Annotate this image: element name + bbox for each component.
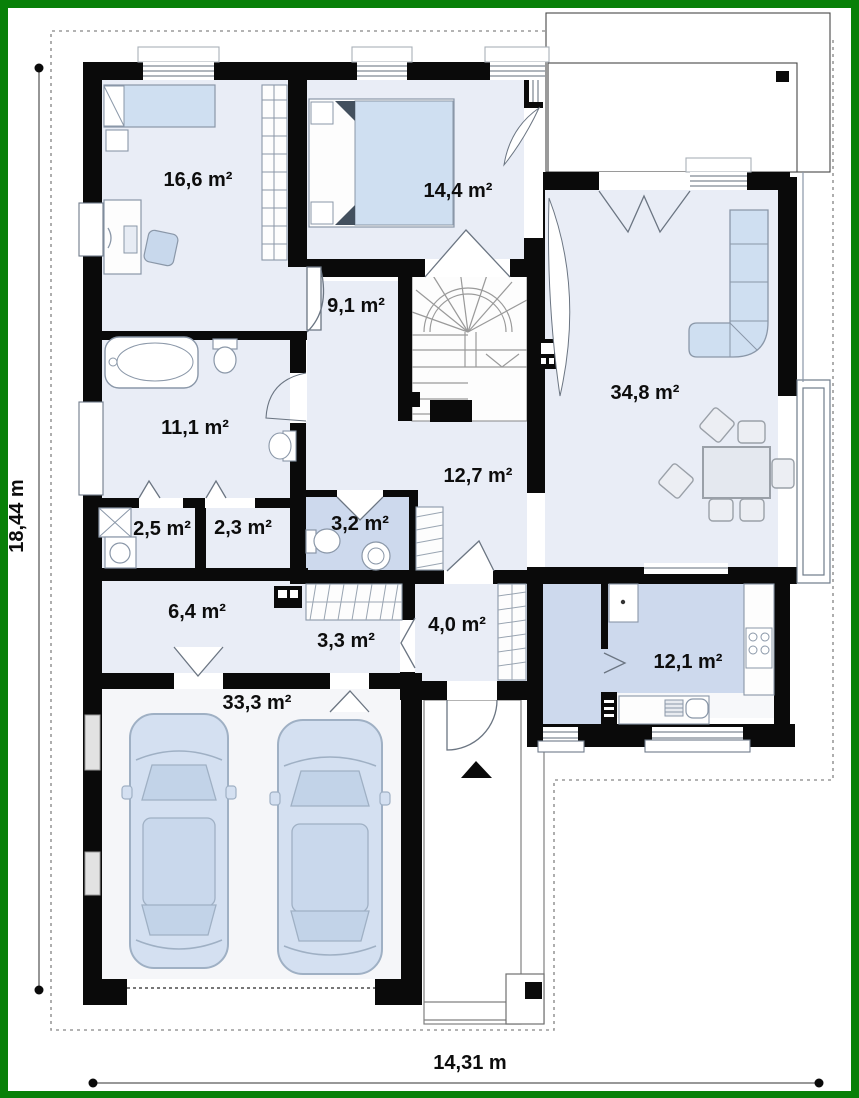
svg-text:4,0 m²: 4,0 m²	[428, 614, 486, 636]
svg-text:12,7 m²: 12,7 m²	[444, 465, 513, 487]
svg-text:3,2 m²: 3,2 m²	[331, 513, 389, 535]
svg-text:14,4 m²: 14,4 m²	[424, 180, 493, 202]
svg-text:2,3 m²: 2,3 m²	[214, 517, 272, 539]
svg-text:14,31 m: 14,31 m	[433, 1052, 506, 1074]
svg-text:12,1 m²: 12,1 m²	[654, 651, 723, 673]
svg-text:11,1 m²: 11,1 m²	[161, 417, 229, 439]
svg-text:2,5 m²: 2,5 m²	[133, 518, 191, 540]
svg-text:6,4 m²: 6,4 m²	[168, 601, 226, 623]
svg-text:9,1 m²: 9,1 m²	[327, 295, 385, 317]
svg-text:34,8 m²: 34,8 m²	[611, 382, 680, 404]
svg-text:33,3 m²: 33,3 m²	[223, 692, 292, 714]
svg-text:18,44 m: 18,44 m	[6, 479, 28, 552]
svg-text:3,3 m²: 3,3 m²	[317, 630, 375, 652]
svg-text:16,6 m²: 16,6 m²	[164, 169, 233, 191]
